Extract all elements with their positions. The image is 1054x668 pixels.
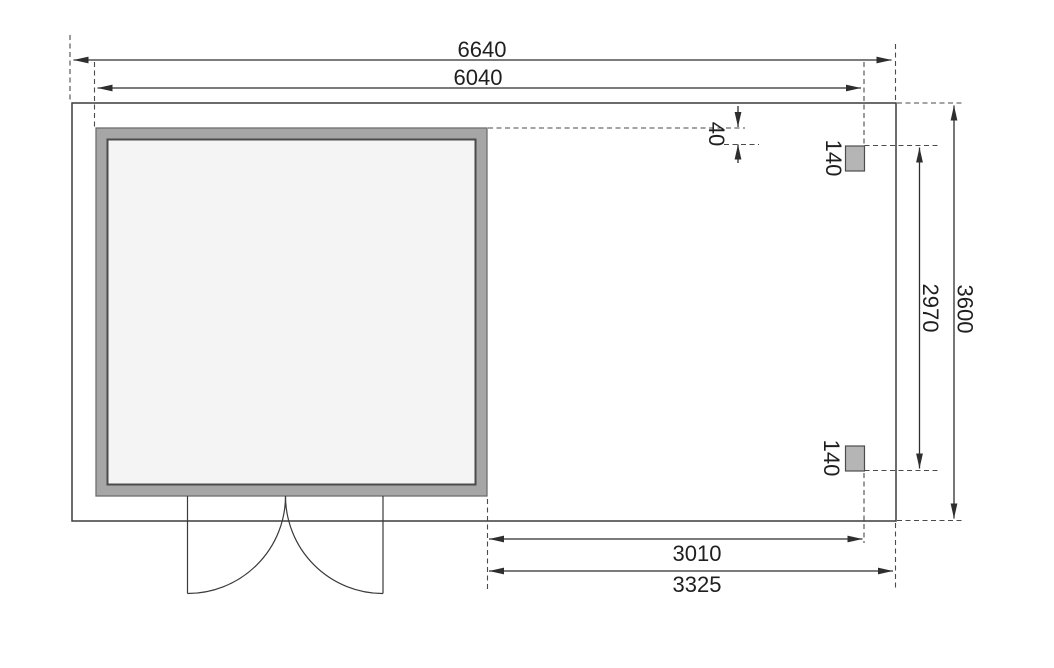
dim-label-side-width-inner: 3010	[673, 541, 722, 566]
dim-label-post-top: 140	[821, 140, 846, 177]
floor-plan-canvas: 6640 6040 3010 3325 40 140 140 2970 3600	[0, 0, 1054, 668]
dim-label-side-width-outer: 3325	[673, 572, 722, 597]
house-interior	[108, 140, 476, 485]
dim-label-house-width: 6040	[454, 65, 503, 90]
dim-label-overall-depth: 3600	[953, 285, 978, 334]
dim-label-post-span-depth: 2970	[918, 284, 943, 333]
dim-label-roof-offset: 40	[704, 122, 729, 146]
floor-plan-drawing: 6640 6040 3010 3325 40 140 140 2970 3600	[0, 0, 1054, 668]
post-top	[846, 146, 865, 171]
dim-label-overall-width: 6640	[458, 37, 507, 62]
post-bottom	[846, 446, 865, 471]
dim-label-post-bottom: 140	[819, 440, 844, 477]
